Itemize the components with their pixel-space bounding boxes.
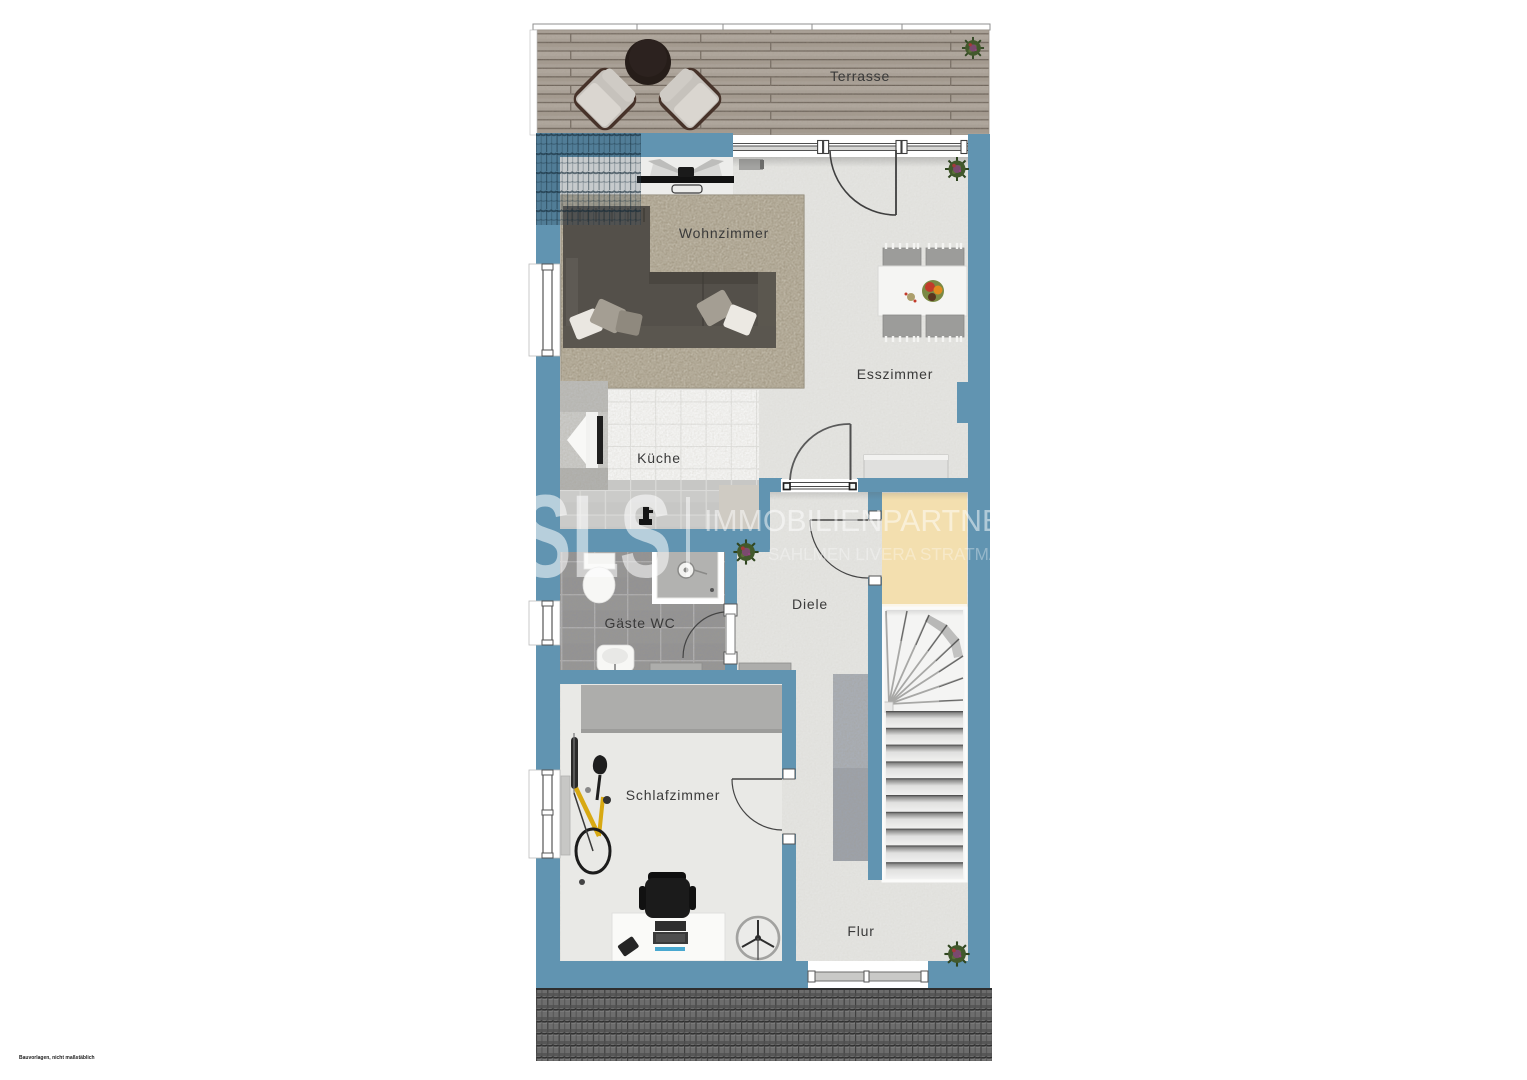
svg-text:Flur: Flur bbox=[847, 923, 874, 939]
svg-text:Terrasse: Terrasse bbox=[830, 68, 890, 84]
svg-text:Bauvorlagen, nicht maßstäblich: Bauvorlagen, nicht maßstäblich bbox=[19, 1055, 95, 1061]
svg-text:IMMOBILIENPARTNER: IMMOBILIENPARTNER bbox=[704, 503, 1024, 538]
svg-text:Schlafzimmer: Schlafzimmer bbox=[626, 787, 720, 803]
svg-text:Diele: Diele bbox=[792, 596, 828, 612]
svg-text:SAHLMEN LIVERA STRATMANN: SAHLMEN LIVERA STRATMANN bbox=[768, 544, 1025, 564]
svg-text:Esszimmer: Esszimmer bbox=[857, 366, 933, 382]
svg-text:Wohnzimmer: Wohnzimmer bbox=[679, 225, 769, 241]
svg-text:Küche: Küche bbox=[637, 450, 681, 466]
svg-text:SLS: SLS bbox=[519, 471, 672, 603]
svg-text:Gäste WC: Gäste WC bbox=[605, 615, 676, 631]
